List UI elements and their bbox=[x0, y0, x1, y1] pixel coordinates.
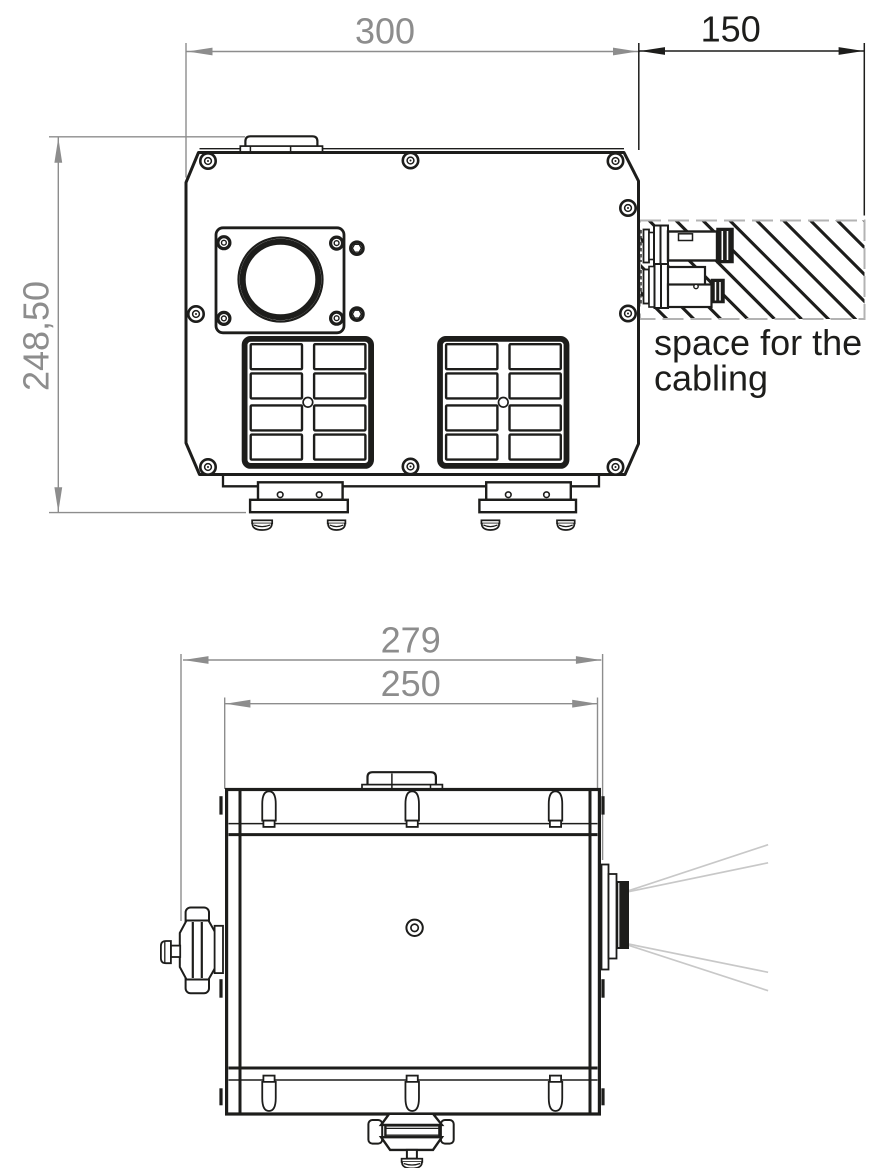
svg-text:279: 279 bbox=[381, 620, 441, 661]
svg-text:248,50: 248,50 bbox=[16, 281, 57, 391]
svg-text:cabling: cabling bbox=[654, 358, 768, 399]
svg-text:150: 150 bbox=[701, 9, 761, 50]
svg-text:250: 250 bbox=[381, 663, 441, 704]
svg-text:300: 300 bbox=[355, 11, 415, 52]
